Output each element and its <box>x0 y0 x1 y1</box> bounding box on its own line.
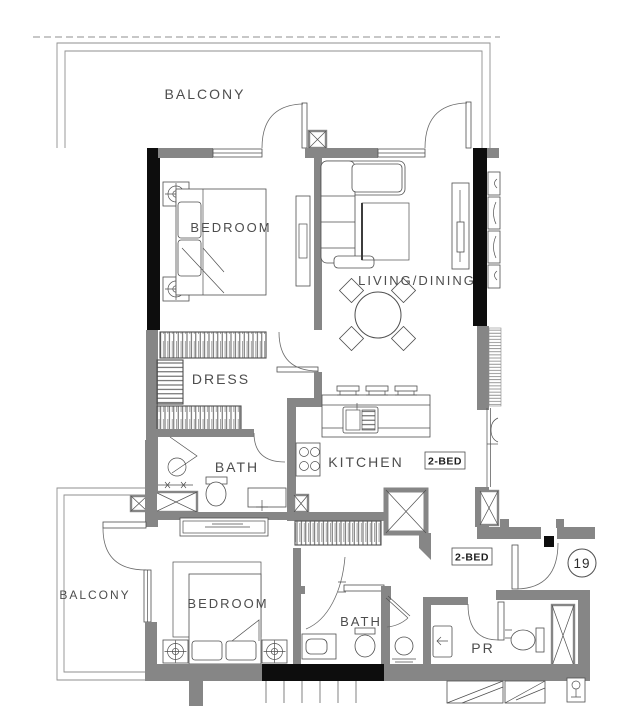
pillow <box>192 641 222 660</box>
door-leaf <box>512 545 518 589</box>
shaft-bath1-icon <box>155 492 197 512</box>
bedroom1-label: BEDROOM <box>190 220 271 235</box>
door-frame-tab <box>500 519 509 528</box>
pr-door <box>468 602 512 640</box>
bed-2 <box>189 574 261 664</box>
door-leaf <box>498 602 504 640</box>
shaft-kitchen-small-icon <box>294 495 308 512</box>
living-dining: LIVING/DINING <box>321 161 476 351</box>
below-wall-hatch <box>266 681 356 703</box>
bath1-label: BATH <box>215 459 259 475</box>
toilet-icon <box>206 477 227 506</box>
vanity-sink-icon <box>248 488 286 511</box>
bath1-door <box>254 433 285 462</box>
wall-corridor-left <box>477 527 541 539</box>
thin-partition <box>487 408 491 487</box>
shaft-pr-icon <box>552 605 574 666</box>
stairs-hatch <box>489 328 501 406</box>
wall-bath2-right <box>381 592 390 668</box>
wall-bath2-top-left <box>293 586 305 594</box>
kitchen-label: KITCHEN <box>328 454 403 470</box>
shower-compartment <box>392 597 431 668</box>
wall-bottom-gray-left <box>145 664 262 681</box>
bed-1 <box>176 189 266 295</box>
closet-units <box>488 172 500 288</box>
window-bedroom2 <box>144 570 151 622</box>
kitchen-counter <box>322 395 430 437</box>
wall-top-1 <box>158 148 213 158</box>
round-basin-icon <box>395 637 413 655</box>
pr-label: PR <box>471 640 494 656</box>
balcony-top-outer-rail <box>57 43 490 148</box>
wall-bath1-top <box>146 429 254 437</box>
stool-icon <box>395 386 417 395</box>
bedroom2-label: BEDROOM <box>187 596 268 611</box>
wall-right-cap <box>487 148 499 158</box>
floor-plan-canvas: BALCONY <box>0 0 625 720</box>
nightstand-crosshair-icon <box>163 640 188 663</box>
wall-pr-top-right <box>496 590 590 600</box>
wall-stub-below <box>189 681 203 706</box>
wall-dress-kitchen <box>314 372 322 400</box>
sink2-icon <box>302 634 336 659</box>
bedroom-2: BEDROOM <box>163 518 287 664</box>
wall-corridor-right <box>557 527 595 539</box>
powder-room: PR <box>431 590 590 666</box>
washer-icon <box>433 626 452 657</box>
door-swing-arc <box>425 103 467 148</box>
balcony-bottom-label: BALCONY <box>59 588 130 602</box>
hall-wardrobe <box>295 521 381 545</box>
unit-number-badge: 19 <box>568 549 596 577</box>
door-leaf <box>277 367 318 372</box>
wall-balcony2-top <box>145 440 157 527</box>
unit-tag-lower-label: 2-BED <box>455 552 489 564</box>
dining-set <box>339 278 415 350</box>
shaft-corridor-icon <box>480 491 498 525</box>
door-frame-tab <box>556 519 564 528</box>
door-leaf <box>344 585 384 591</box>
door-swing-arc <box>279 332 318 371</box>
wardrobe-bottom <box>157 406 241 432</box>
wall-pr-top-left <box>431 597 468 605</box>
door-swing-arc <box>517 543 558 589</box>
window-bedroom1 <box>213 149 262 157</box>
floor-plan: BALCONY <box>0 0 625 720</box>
wardrobe-top <box>160 332 266 358</box>
balcony-top-label: BALCONY <box>165 86 246 102</box>
unit-number-label: 19 <box>573 556 590 571</box>
door-hinge-mark <box>505 630 512 638</box>
shaft-below-left <box>447 681 503 703</box>
balcony-bottom-outer-rail <box>57 488 146 680</box>
wardrobe-left <box>157 360 183 404</box>
unit-tag-upper-label: 2-BED <box>428 456 462 468</box>
dining-table <box>355 292 401 338</box>
shower-icon <box>158 437 197 488</box>
tv-console-bedroom1 <box>296 196 310 286</box>
stool-icon <box>337 386 359 395</box>
door-leaf <box>103 522 146 528</box>
balcony-top: BALCONY <box>33 37 500 148</box>
kitchen-sink-icon <box>343 403 378 433</box>
fixture-below-icon <box>567 678 585 702</box>
entry-corridor: 19 <box>477 519 596 589</box>
balcony2-door <box>103 522 146 570</box>
dresser <box>180 518 268 536</box>
nightstand-crosshair-icon <box>262 640 287 663</box>
balcony-door-1 <box>262 103 307 148</box>
wall-shaft-stub <box>419 533 431 560</box>
stool-icon <box>366 386 388 395</box>
bedroom-1: BEDROOM <box>163 150 322 330</box>
balcony-bottom: BALCONY <box>57 440 157 680</box>
shaft-small-left-icon <box>131 496 147 511</box>
stove-icon <box>296 443 320 476</box>
wall-left-black <box>147 148 160 330</box>
wall-bottom-black <box>262 664 384 681</box>
toilet3-icon <box>511 628 544 652</box>
door-swing-arc <box>254 433 285 462</box>
wall-pr-right <box>578 600 590 666</box>
unit-tag-upper: 2-BED <box>425 452 465 469</box>
wall-kitchen-bottom <box>287 512 385 521</box>
shaft-below-right <box>505 681 545 703</box>
dress-door <box>277 332 318 372</box>
pillow <box>226 641 256 660</box>
wall-balcony2-bottom <box>145 622 157 664</box>
wall-bedroom2-right <box>293 548 301 668</box>
door-stop-icon <box>487 418 498 444</box>
bath-2: BATH <box>293 586 431 668</box>
wall-compartment-right <box>423 597 431 668</box>
faucet-mark <box>392 659 416 662</box>
shaft-top-icon <box>309 131 326 148</box>
bath2-label: BATH <box>340 614 382 629</box>
dining-chair <box>339 326 363 350</box>
door-swing-arc <box>262 104 303 148</box>
balcony-bottom-inner-rail <box>64 495 146 672</box>
door-swing-arc <box>306 557 345 629</box>
wall-right-black <box>473 148 487 326</box>
toilet2-icon <box>355 628 375 657</box>
entry-door-tab <box>544 536 554 547</box>
pillow <box>178 240 201 276</box>
door-leaf <box>302 103 307 148</box>
bar-stools <box>337 386 417 395</box>
dress-label: DRESS <box>192 371 250 387</box>
door-swing-arc <box>103 528 146 570</box>
unit-tag-lower: 2-BED <box>452 548 492 565</box>
door-swing-arc <box>387 618 408 627</box>
window-living <box>378 149 425 157</box>
balcony-top-inner-rail <box>65 51 482 148</box>
balcony-door-2 <box>425 102 471 148</box>
tv-unit-living <box>452 183 469 269</box>
door-swing-arc <box>468 604 498 640</box>
entry-door <box>512 543 558 589</box>
wall-bottom-gray-right <box>384 664 590 681</box>
shaft-hall-icon <box>386 490 426 533</box>
rug-coffee-table <box>362 203 409 260</box>
living-dining-label: LIVING/DINING <box>358 273 476 288</box>
door-leaf <box>466 102 471 148</box>
wall-right-mid <box>477 326 489 410</box>
bottom-exterior-wall <box>145 664 590 706</box>
